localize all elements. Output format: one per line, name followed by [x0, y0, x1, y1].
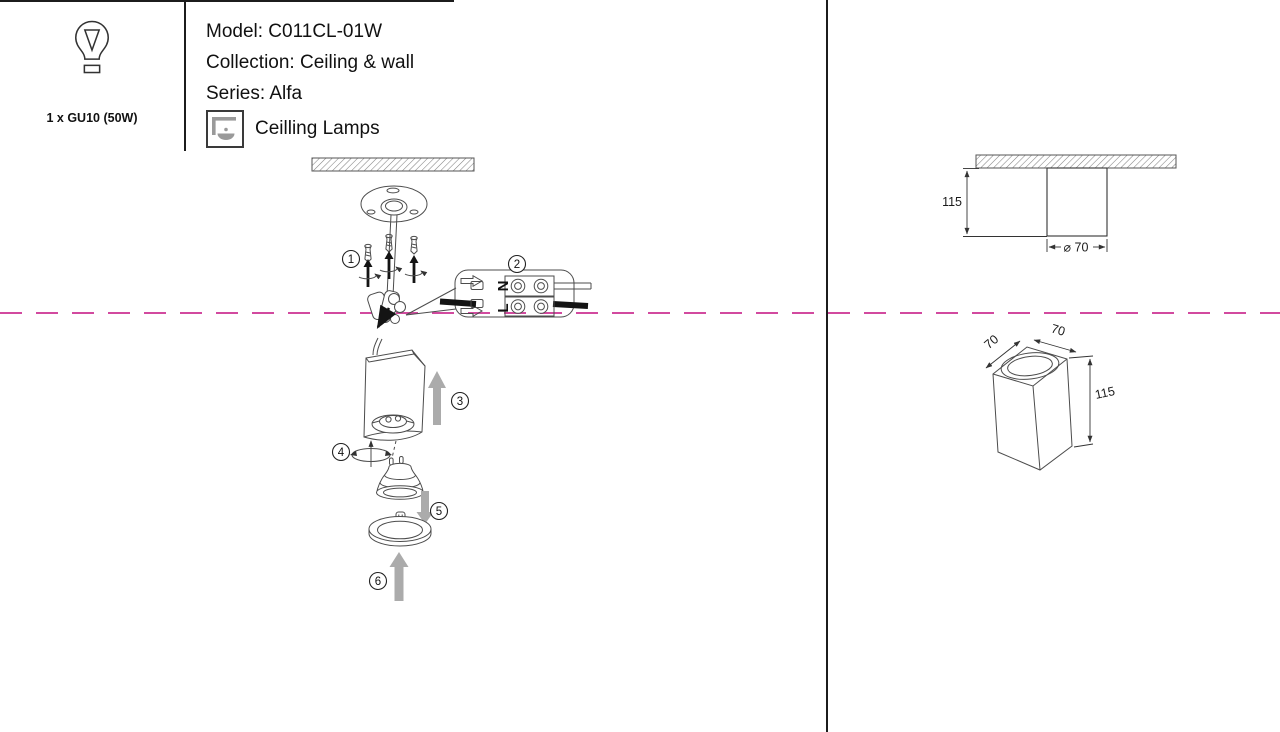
up-arrow: [390, 552, 409, 601]
screw-up-arrow: [385, 251, 394, 279]
screw-icon: [411, 236, 417, 254]
lamp-profile: [1047, 168, 1107, 236]
step-2-terminal-block: N L 2: [440, 256, 591, 318]
step-1-screws: 1: [343, 234, 423, 287]
datasheet-page: 1: [0, 0, 1280, 732]
screw-up-arrow: [364, 259, 373, 287]
gu10-bulb: [377, 457, 424, 500]
up-arrow: [428, 371, 446, 425]
dimension-drawings: 115 ⌀ 70 70 70 115: [830, 0, 1280, 580]
ceiling-hatch: [976, 155, 1176, 168]
step-1-number: 1: [348, 254, 354, 266]
step-4-rotate: 4: [333, 441, 393, 467]
step-6-number: 6: [375, 576, 381, 588]
terminal-n-label: N: [495, 281, 512, 292]
height-dimension: 115: [942, 195, 962, 209]
step-3-number: 3: [457, 396, 463, 408]
side-view: 115 ⌀ 70: [942, 155, 1176, 255]
callout-line: [406, 309, 456, 315]
step-2-number: 2: [514, 259, 520, 271]
alignment-dashes: [392, 441, 396, 458]
step-5-number: 5: [436, 506, 442, 518]
ceiling-lamp-icon: [206, 110, 244, 148]
terminal-l-label: L: [495, 303, 512, 312]
iso-view: 70 70 115: [982, 322, 1117, 470]
mounting-plate: [361, 186, 427, 222]
step-4-number: 4: [338, 447, 345, 459]
diameter-dimension: ⌀ 70: [1064, 241, 1089, 255]
depth-dimension: 70: [982, 332, 1002, 352]
height-dimension: 115: [1094, 384, 1116, 402]
panel-divider: [826, 0, 828, 732]
installation-diagram: 1: [0, 0, 830, 732]
wire-junction: [366, 290, 405, 327]
width-dimension: 70: [1049, 322, 1066, 339]
lamp-body: [364, 338, 425, 440]
white-wire: [554, 283, 591, 289]
black-wire: [553, 304, 588, 306]
ceiling-hatch: [312, 158, 474, 171]
bulb-icon: [71, 19, 113, 85]
screw-up-arrow: [410, 255, 419, 283]
